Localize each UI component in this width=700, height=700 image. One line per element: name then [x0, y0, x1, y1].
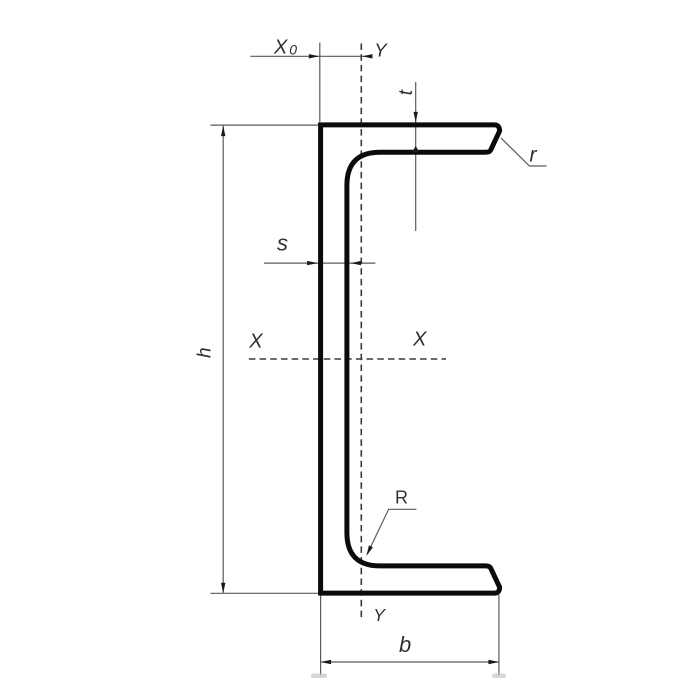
svg-text:t: t — [396, 89, 417, 95]
svg-text:Y: Y — [374, 40, 388, 61]
svg-text:h: h — [194, 347, 215, 358]
svg-text:Y: Y — [373, 605, 386, 625]
svg-text:s: s — [277, 231, 288, 256]
svg-text:r: r — [530, 143, 538, 166]
svg-text:X: X — [248, 331, 263, 353]
svg-text:X: X — [273, 36, 288, 58]
svg-text:R: R — [395, 488, 408, 508]
svg-text:b: b — [399, 632, 411, 657]
svg-text:0: 0 — [289, 42, 297, 58]
svg-text:X: X — [412, 329, 427, 351]
